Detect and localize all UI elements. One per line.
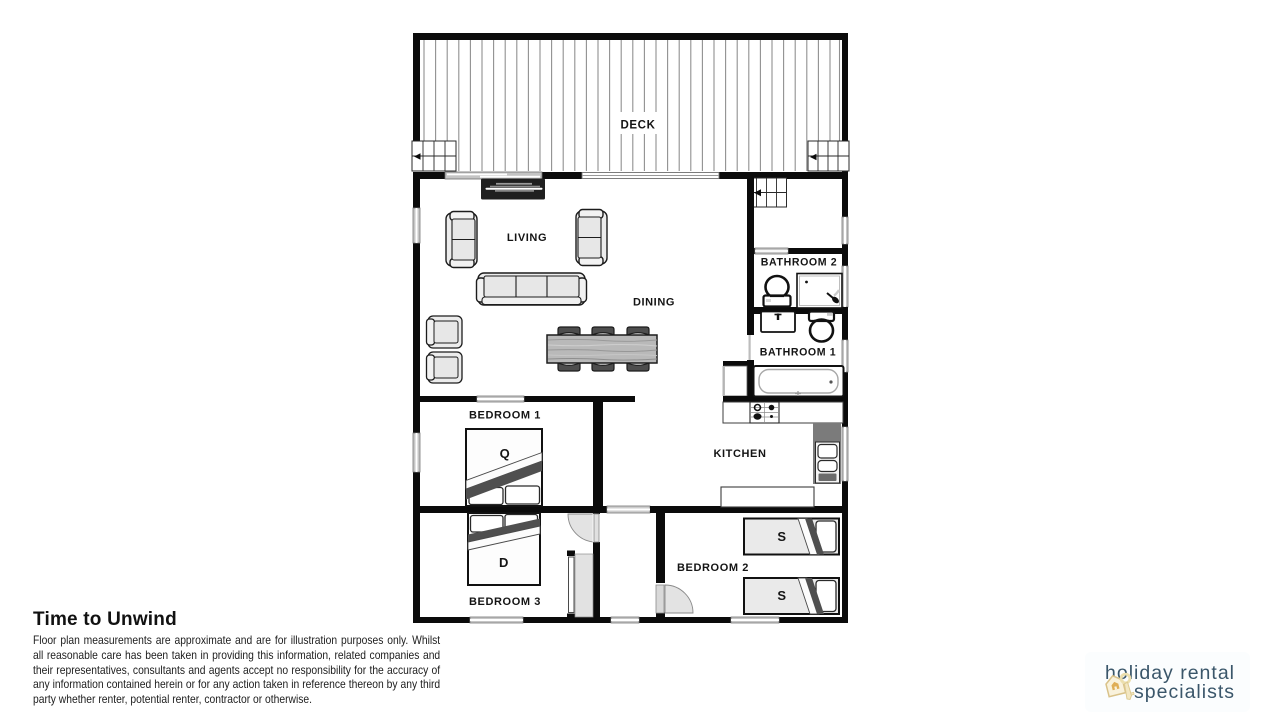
- svg-text:S: S: [777, 529, 786, 544]
- svg-text:KITCHEN: KITCHEN: [713, 448, 766, 460]
- svg-text:LIVING: LIVING: [507, 232, 547, 244]
- svg-text:D: D: [499, 555, 509, 570]
- svg-text:BATHROOM 2: BATHROOM 2: [761, 257, 837, 269]
- svg-text:S: S: [777, 588, 786, 603]
- svg-text:Q: Q: [500, 446, 511, 461]
- svg-text:BEDROOM 3: BEDROOM 3: [469, 596, 541, 608]
- svg-text:BEDROOM 1: BEDROOM 1: [469, 410, 541, 422]
- svg-text:BATHROOM 1: BATHROOM 1: [760, 347, 836, 359]
- svg-text:DINING: DINING: [633, 297, 675, 309]
- svg-text:BEDROOM 2: BEDROOM 2: [677, 562, 749, 574]
- svg-text:DECK: DECK: [621, 120, 656, 132]
